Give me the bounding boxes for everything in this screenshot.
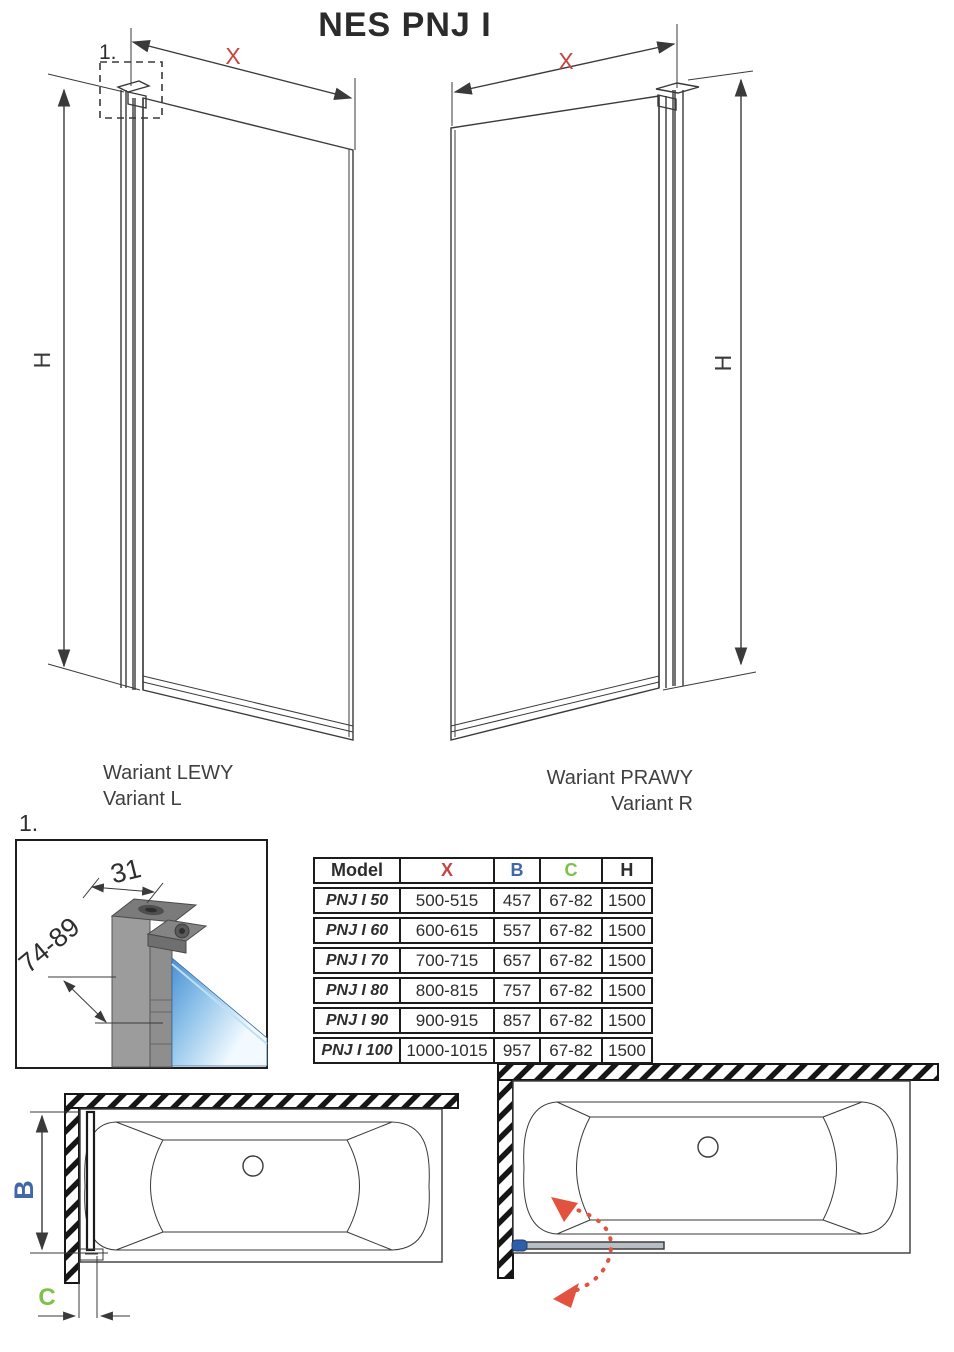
dim-c-label: C <box>38 1284 55 1311</box>
cell-model: PNJ I 60 <box>313 917 401 944</box>
caption-variant-right-en: Variant R <box>493 791 693 817</box>
dim-x-label: X <box>225 43 240 69</box>
cell-x: 1000-1015 <box>401 1037 495 1064</box>
bottom-rail <box>451 676 659 740</box>
cell-model: PNJ I 50 <box>313 887 401 914</box>
detail-callout-label: 1. <box>99 41 117 64</box>
cell-x: 500-515 <box>401 887 495 914</box>
cell-h: 1500 <box>603 917 653 944</box>
table-row: PNJ I 50 500-515 457 67-82 1500 <box>313 887 653 914</box>
screen-panel <box>526 1242 664 1249</box>
glass-panel-outline <box>143 98 353 740</box>
diagram-variant-left: H X 1. <box>29 28 355 740</box>
cell-c: 67-82 <box>541 887 603 914</box>
col-header-c: C <box>541 857 603 884</box>
cell-model: PNJ I 80 <box>313 977 401 1004</box>
bottom-rail <box>143 676 353 740</box>
cell-h: 1500 <box>603 1037 653 1064</box>
cell-model: PNJ I 70 <box>313 947 401 974</box>
caption-variant-right-pl: Wariant PRAWY <box>493 765 693 791</box>
bathtub-outer <box>80 1109 442 1262</box>
table-row: PNJ I 60 600-615 557 67-82 1500 <box>313 917 653 944</box>
cell-x: 600-615 <box>401 917 495 944</box>
col-header-h: H <box>603 857 653 884</box>
cell-model: PNJ I 90 <box>313 1007 401 1034</box>
caption-variant-left: Wariant LEWY Variant L <box>103 760 233 812</box>
drain <box>243 1156 263 1176</box>
spec-sheet: NES PNJ I H X <box>0 0 954 1352</box>
wall-profile-cap <box>118 81 149 92</box>
dim-h-label: H <box>710 355 736 372</box>
plan-view-left: B C <box>9 1094 458 1318</box>
profile-body <box>112 908 150 1067</box>
col-header-model: Model <box>313 857 401 884</box>
detail-marker: 1. <box>19 810 38 836</box>
glass-panel-outline <box>451 96 659 740</box>
cell-x: 700-715 <box>401 947 495 974</box>
screen-panel <box>87 1112 94 1250</box>
table-header-row: Model X B C H <box>313 857 653 884</box>
cell-b: 657 <box>495 947 541 974</box>
caption-variant-right: Wariant PRAWY Variant R <box>493 765 693 817</box>
cell-h: 1500 <box>603 947 653 974</box>
cell-b: 757 <box>495 977 541 1004</box>
swing-arrowhead-down <box>553 1283 579 1308</box>
cell-c: 67-82 <box>541 977 603 1004</box>
cell-b: 857 <box>495 1007 541 1034</box>
plan-view-right <box>498 1064 938 1308</box>
cell-b: 957 <box>495 1037 541 1064</box>
dim-h-label: H <box>29 352 55 369</box>
cell-model: PNJ I 100 <box>313 1037 401 1064</box>
technical-drawing: H X 1. H X <box>0 0 954 1352</box>
cell-h: 1500 <box>603 1007 653 1034</box>
table-row: PNJ I 100 1000-1015 957 67-82 1500 <box>313 1037 653 1064</box>
col-header-b: B <box>495 857 541 884</box>
cell-c: 67-82 <box>541 917 603 944</box>
table-row: PNJ I 70 700-715 657 67-82 1500 <box>313 947 653 974</box>
caption-variant-left-pl: Wariant LEWY <box>103 760 233 786</box>
table-row: PNJ I 90 900-915 857 67-82 1500 <box>313 1007 653 1034</box>
drain <box>698 1137 718 1157</box>
caption-variant-left-en: Variant L <box>103 786 233 812</box>
cell-x: 800-815 <box>401 977 495 1004</box>
wall-left <box>498 1080 513 1278</box>
wall-profile <box>659 90 683 688</box>
wall-profile <box>121 90 143 690</box>
cell-b: 557 <box>495 917 541 944</box>
cell-h: 1500 <box>603 887 653 914</box>
clamp-screw-inner <box>179 928 185 934</box>
c-extension-lines <box>79 1256 97 1318</box>
size-table: Model X B C H PNJ I 50 500-515 457 67-82… <box>313 854 653 1067</box>
col-header-x: X <box>401 857 495 884</box>
cell-x: 900-915 <box>401 1007 495 1034</box>
dim-b-label: B <box>9 1180 39 1200</box>
cell-h: 1500 <box>603 977 653 1004</box>
detail-inset: 1. 31 74-89 <box>13 810 267 1068</box>
hinge <box>512 1240 527 1251</box>
cell-c: 67-82 <box>541 1007 603 1034</box>
h-extension-lines <box>48 28 355 690</box>
table-row: PNJ I 80 800-815 757 67-82 1500 <box>313 977 653 1004</box>
cell-c: 67-82 <box>541 947 603 974</box>
wall-top <box>65 1094 458 1108</box>
cell-b: 457 <box>495 887 541 914</box>
clamp-body <box>150 940 172 1067</box>
diagram-variant-right: H X <box>451 24 756 740</box>
wall-left <box>65 1108 79 1283</box>
dim-x-label: X <box>558 48 573 74</box>
x-dimension-line <box>133 42 351 98</box>
cell-c: 67-82 <box>541 1037 603 1064</box>
